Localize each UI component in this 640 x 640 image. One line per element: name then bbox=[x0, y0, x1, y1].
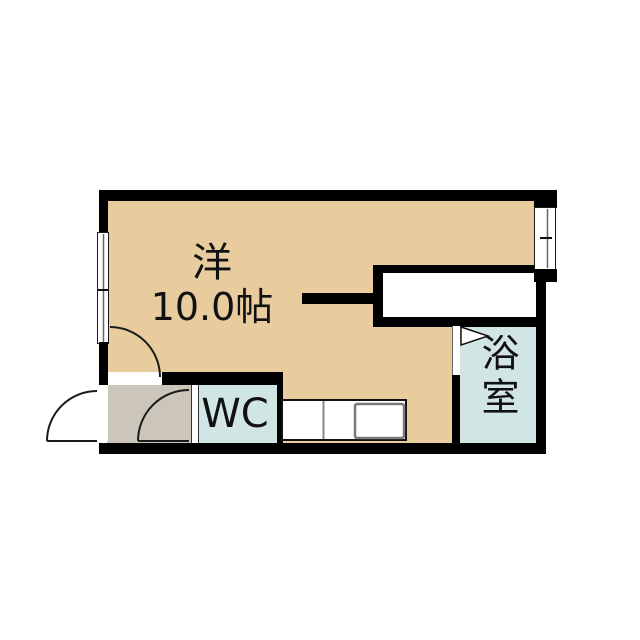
toilet-label: WC bbox=[201, 394, 268, 434]
entry-door-swing-arc bbox=[47, 391, 97, 441]
toilet-door-swing-arc bbox=[138, 390, 189, 441]
main-room-area-label: 10.0帖 bbox=[151, 288, 274, 326]
bathroom-label: 浴室 bbox=[478, 333, 516, 421]
main-room-type-label: 洋 bbox=[192, 243, 232, 283]
main-room-door-swing-arc bbox=[110, 327, 160, 377]
floorplan-canvas: 洋 10.0帖 WC 浴室 bbox=[0, 0, 640, 640]
linework-layer bbox=[0, 0, 640, 640]
kitchen-sink bbox=[355, 404, 404, 438]
